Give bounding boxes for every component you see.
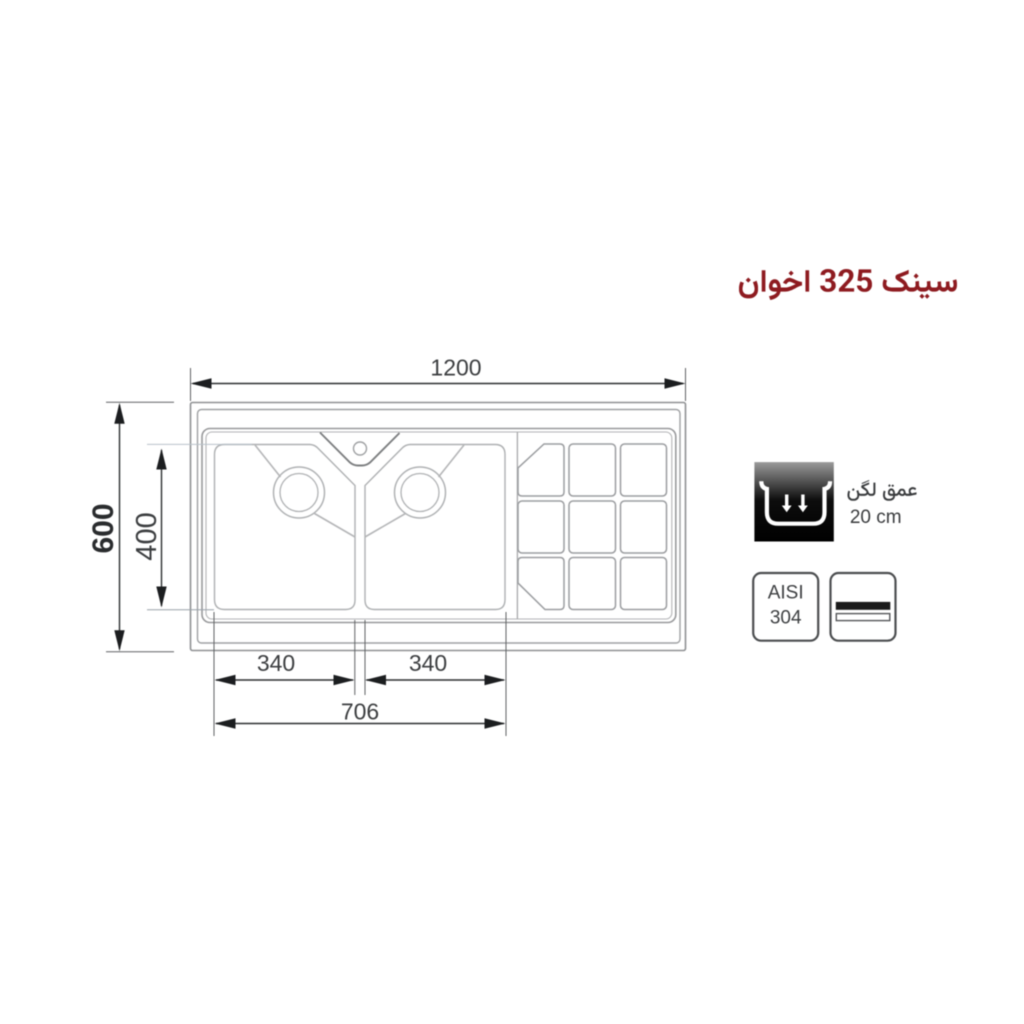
svg-text:340: 340 bbox=[409, 650, 447, 676]
svg-text:340: 340 bbox=[257, 650, 295, 676]
svg-text:1200: 1200 bbox=[430, 355, 481, 381]
svg-text:304: 304 bbox=[770, 608, 802, 629]
svg-text:AISI: AISI bbox=[768, 583, 804, 604]
svg-text:600: 600 bbox=[87, 503, 120, 553]
svg-text:20 cm: 20 cm bbox=[850, 507, 902, 528]
svg-text:706: 706 bbox=[341, 699, 379, 725]
svg-text:400: 400 bbox=[131, 512, 163, 560]
